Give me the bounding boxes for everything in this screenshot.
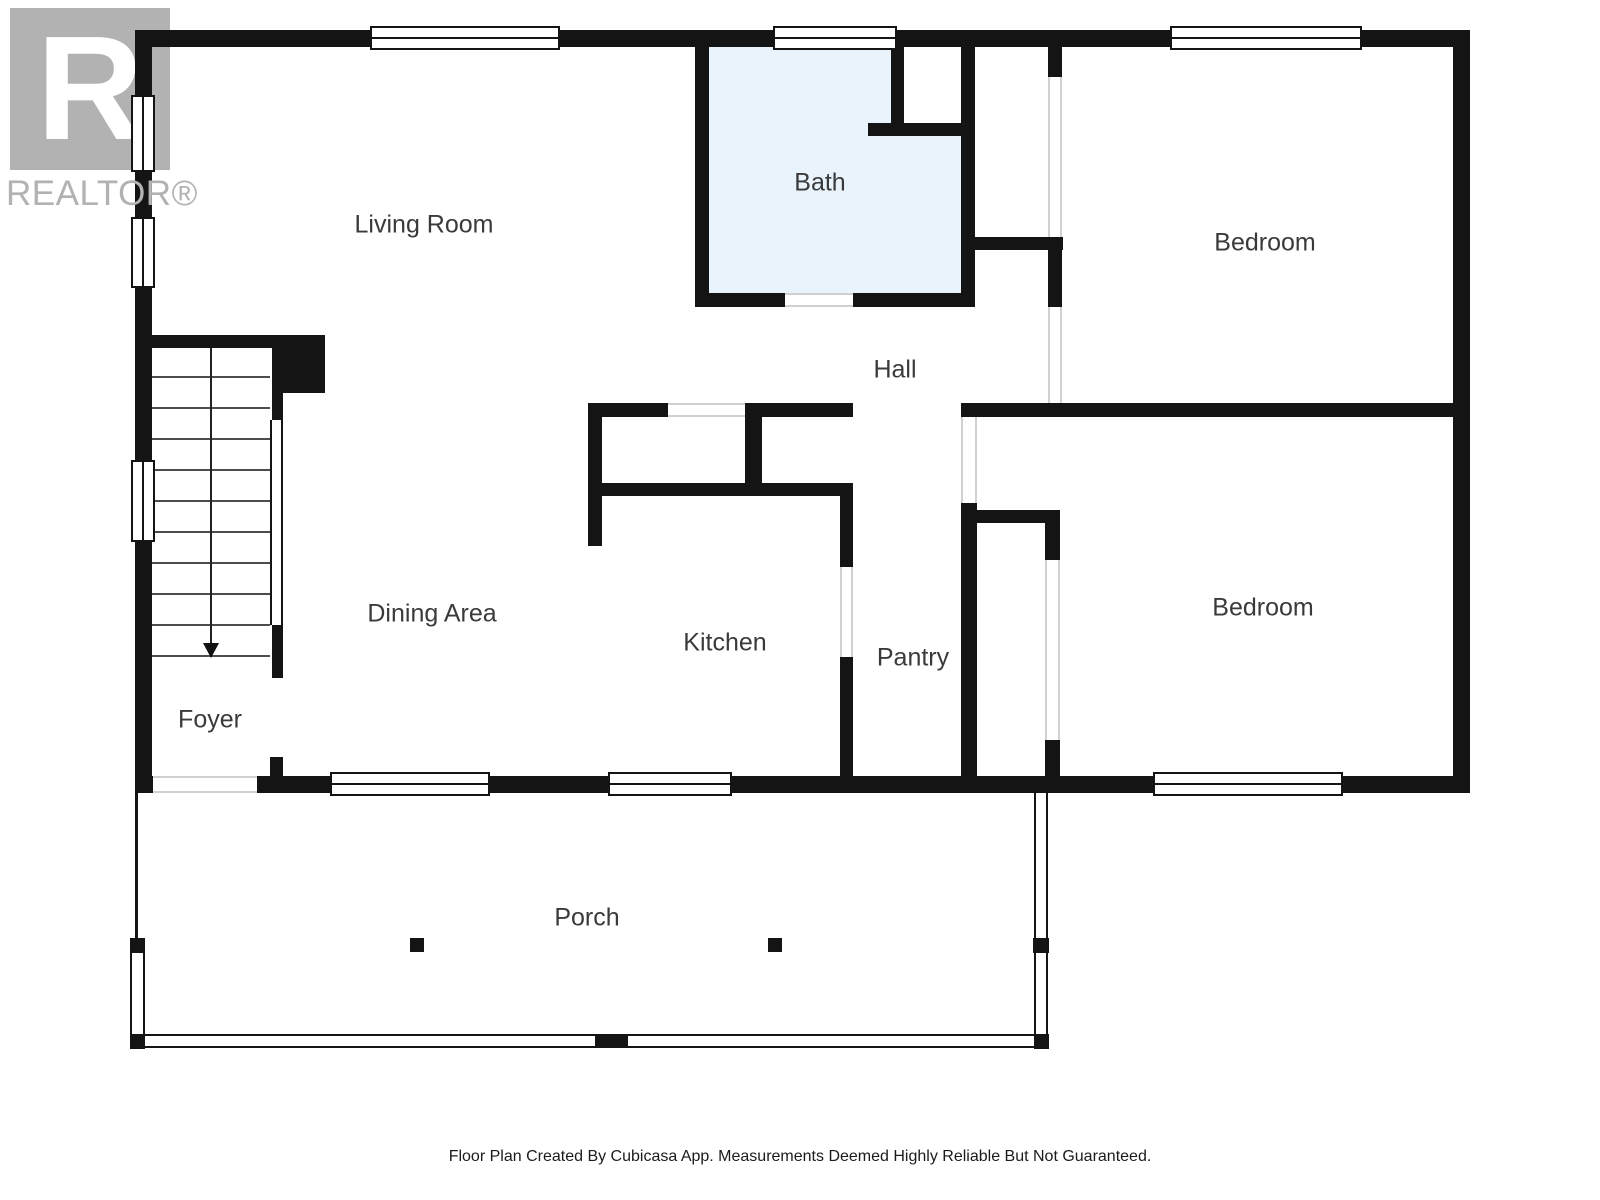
floor-plan: R REALTOR® Floor Plan Created By Cubicas… xyxy=(0,0,1600,1200)
bath-notch-white xyxy=(904,47,961,123)
room-label-bath: Bath xyxy=(794,169,845,198)
room-label-hall: Hall xyxy=(873,356,916,385)
porch-step-block xyxy=(595,1034,628,1048)
window-left-upper-pane xyxy=(142,97,144,170)
wall-closet-jamb-top xyxy=(1048,47,1062,77)
opening-front-entry xyxy=(153,776,257,793)
room-label-foyer: Foyer xyxy=(178,706,242,735)
opening-bedroom-bottom-door xyxy=(961,417,977,503)
wall-foyer-jamb xyxy=(270,757,283,776)
stair-direction-line xyxy=(210,345,212,643)
opening-closet-top-bedroom xyxy=(1048,77,1062,237)
stair-railing xyxy=(270,420,283,625)
realtor-logo-r-icon: R xyxy=(37,15,144,163)
wall-bath-east xyxy=(961,47,975,307)
window-bedroom-top-pane xyxy=(1172,37,1360,39)
footer-disclaimer: Floor Plan Created By Cubicasa App. Meas… xyxy=(0,1148,1600,1166)
window-left-mid xyxy=(131,217,155,288)
porch-post-right-bottom xyxy=(1034,1034,1049,1049)
opening-hall-living xyxy=(668,403,745,417)
room-label-kitchen: Kitchen xyxy=(683,629,766,658)
wall-pantry-east xyxy=(961,503,977,776)
room-label-bedroom-bottom: Bedroom xyxy=(1212,594,1313,623)
window-left-stairs xyxy=(131,460,155,542)
wall-closet-east xyxy=(1048,237,1062,307)
porch-edge-left xyxy=(135,793,138,940)
window-left-stairs-pane xyxy=(142,462,144,540)
opening-bedroom-closet-door xyxy=(1045,560,1060,740)
stair-down-arrow-icon xyxy=(203,643,219,658)
room-label-living-room: Living Room xyxy=(355,211,494,240)
wall-bath-west xyxy=(695,47,709,293)
window-living-top-pane xyxy=(372,37,558,39)
room-label-bedroom-top: Bedroom xyxy=(1214,229,1315,258)
porch-rail-right-bottom xyxy=(1034,952,1048,1036)
opening-bath-door xyxy=(785,293,853,307)
porch-column-left xyxy=(410,938,424,952)
wall-bath-notch-vert xyxy=(891,47,904,123)
window-left-mid-pane xyxy=(142,219,144,286)
wall-stair-side-upper xyxy=(272,393,283,420)
wall-stair-head-wall xyxy=(152,335,272,348)
wall-pantry-west-upper xyxy=(840,483,853,567)
window-living-top xyxy=(370,26,560,50)
window-bedroom-top xyxy=(1170,26,1362,50)
window-left-upper xyxy=(131,95,155,172)
wall-stair-side-lower xyxy=(272,625,283,678)
room-label-pantry: Pantry xyxy=(877,644,949,673)
porch-column-right xyxy=(768,938,782,952)
window-bath-top-pane xyxy=(775,37,895,39)
window-kitchen-bottom-pane xyxy=(610,783,730,785)
room-label-porch: Porch xyxy=(554,904,619,933)
porch-rail-bottom xyxy=(135,1034,1048,1048)
porch-post-left-mid xyxy=(130,938,145,953)
wall-bedroom-closet-east-upper xyxy=(1045,510,1060,560)
wall-kitchen-north xyxy=(588,483,853,496)
porch-post-left-bottom xyxy=(130,1034,145,1049)
window-bedroom-bottom xyxy=(1153,772,1343,796)
window-bath-top xyxy=(773,26,897,50)
wall-bedroom-closet-east-lower xyxy=(1045,740,1060,776)
wall-kitchen-west xyxy=(588,403,602,546)
opening-pantry-kitchen xyxy=(840,567,853,657)
realtor-logo-wordmark: REALTOR® xyxy=(6,174,216,214)
wall-bedrooms-divider xyxy=(961,403,1470,417)
porch-post-right-mid xyxy=(1033,938,1049,953)
wall-pantry-west-lower xyxy=(840,657,853,776)
wall-bath-notch-horiz xyxy=(868,123,975,136)
porch-rail-right-top xyxy=(1034,793,1048,938)
wall-bath-south-left xyxy=(695,293,785,307)
window-dining-bottom-pane xyxy=(332,783,488,785)
porch-rail-left xyxy=(130,952,145,1036)
wall-stair-corner-block xyxy=(272,335,325,393)
window-dining-bottom xyxy=(330,772,490,796)
wall-kitchen-entry-jamb xyxy=(745,403,762,483)
opening-closet-hall xyxy=(1048,307,1062,403)
wall-bath-south-right xyxy=(853,293,975,307)
room-label-dining-area: Dining Area xyxy=(367,600,496,629)
window-kitchen-bottom xyxy=(608,772,732,796)
window-bedroom-bottom-pane xyxy=(1155,783,1341,785)
